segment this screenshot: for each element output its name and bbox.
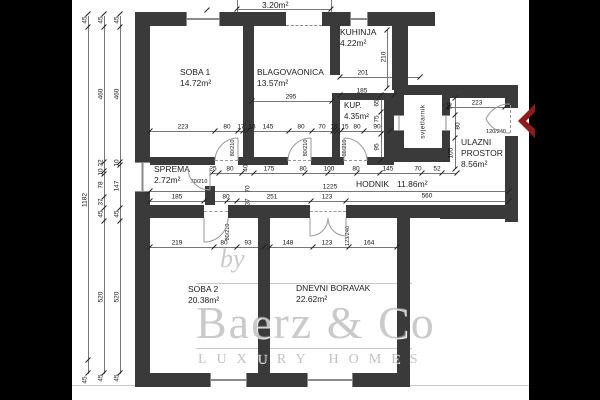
room-area: 4.35m² — [344, 111, 369, 122]
dimension-label: 93 — [244, 240, 251, 247]
dimension-label: 460 — [98, 89, 105, 100]
dimension-label: 45 — [98, 374, 105, 381]
tick-mark — [384, 85, 390, 91]
room-name: DNEVNI BORAVAK — [296, 283, 370, 293]
dimension-label: 70 — [245, 185, 252, 192]
dimension-label: 185 — [357, 88, 368, 95]
room-area-hodnik: 11.86m² — [397, 179, 428, 190]
dimension-line — [150, 131, 390, 132]
dimension-label: 148 — [283, 240, 294, 247]
wall — [205, 186, 215, 205]
dimension-label: 80 — [226, 166, 233, 173]
room-name: HODNIK — [356, 179, 389, 189]
dimension-label: 65 — [374, 99, 381, 106]
wall — [135, 192, 150, 387]
dimension-line — [448, 107, 505, 108]
wall — [258, 218, 270, 373]
dimension-label: 560 — [422, 193, 433, 200]
window — [210, 373, 247, 387]
dimension-label: 45 — [98, 16, 105, 23]
left-letterbox-bar — [0, 0, 72, 400]
room-label-sprema: SPREMA 2.72m² — [154, 164, 190, 186]
dimension-label: 210 — [381, 52, 388, 63]
dimension-label: 100 — [324, 166, 335, 173]
door-threshold — [215, 160, 238, 161]
dimension-label: 70 — [318, 124, 325, 131]
door-size-label: 80/210 — [303, 140, 309, 157]
room-name: KUHINJA — [340, 27, 376, 37]
door-threshold — [204, 211, 228, 212]
balcony-area-label: 3.20m² — [262, 0, 288, 11]
tick-mark — [85, 370, 91, 376]
dimension-label: 175 — [264, 166, 275, 173]
window — [186, 12, 220, 26]
door-size-label: 80/210 — [230, 140, 236, 157]
dimension-label: 78 — [98, 181, 105, 188]
wall — [346, 205, 440, 218]
dimension-label: 80 — [299, 166, 306, 173]
window — [442, 115, 450, 131]
wall — [440, 205, 518, 219]
dimension-label: 1182 — [82, 193, 89, 207]
dimension-line — [381, 95, 382, 160]
room-area: 3.20m² — [262, 0, 288, 10]
dimension-label: 17 — [237, 124, 244, 131]
light-well: svjetlarnik — [404, 95, 442, 148]
room-name: SOBA 1 — [180, 67, 210, 77]
dimension-label: 223 — [178, 124, 189, 131]
right-letterbox-bar — [529, 0, 600, 400]
door-size-label: 70/210 — [191, 179, 208, 185]
tick-mark — [454, 170, 460, 176]
door-threshold — [344, 160, 367, 161]
tick-mark — [417, 74, 423, 80]
dimension-label: 123 — [322, 240, 333, 247]
watermark-by: by — [220, 244, 245, 274]
dimension-label: 80 — [353, 124, 360, 131]
dimension-label: 80 — [220, 240, 227, 247]
dimension-label: 10 — [98, 168, 105, 175]
room-name: ULAZNI PROSTOR — [461, 137, 503, 158]
room-area: 13.57m² — [257, 78, 324, 89]
wall — [247, 373, 307, 387]
dimension-label: 90 — [373, 124, 380, 131]
door-threshold — [288, 160, 311, 161]
dimension-label: 25 — [209, 166, 216, 173]
room-area: 20.38m² — [188, 295, 219, 306]
door-threshold — [510, 105, 511, 133]
window — [350, 12, 368, 26]
dimension-label: 201 — [358, 70, 369, 77]
dimension-label: 37 — [98, 198, 105, 205]
dimension-line — [455, 98, 456, 169]
wall — [135, 12, 150, 162]
room-label-soba1: SOBA 1 14.72m² — [180, 67, 211, 89]
dimension-label: 460 — [114, 89, 121, 100]
room-area: 11.86m² — [397, 179, 428, 189]
wall — [311, 157, 344, 165]
dimension-label: 45 — [114, 210, 121, 217]
dimension-label: 15 — [341, 124, 348, 131]
dimension-label: 45 — [82, 376, 89, 383]
room-area: 14.72m² — [180, 78, 211, 89]
dimension-label: 37 — [245, 198, 252, 205]
dimension-label: 295 — [286, 94, 297, 101]
room-area: 2.72m² — [154, 175, 190, 186]
dimension-label: 520 — [114, 292, 121, 303]
dimension-label: 105 — [448, 148, 455, 159]
dimension-label: 40 — [243, 164, 250, 171]
door-size-label: 80/210 — [225, 224, 231, 241]
dimension-label: 45 — [114, 374, 121, 381]
dimension-label: 164 — [364, 240, 375, 247]
room-name: KUP. — [344, 101, 362, 110]
wall — [228, 205, 310, 218]
wall — [135, 205, 204, 218]
room-label-blagovaonica: BLAGOVAONICA 13.57m² — [257, 67, 324, 89]
dimension-line — [120, 16, 121, 374]
dimension-label: 80 — [352, 166, 359, 173]
watermark-tagline: LUXURY HOMES — [198, 352, 428, 368]
window — [307, 373, 353, 387]
dimension-label: 32 — [98, 159, 105, 166]
wall — [135, 373, 210, 387]
room-name: svjetlarnik — [420, 104, 427, 138]
wall — [397, 218, 410, 373]
dimension-label: 58 — [447, 102, 454, 109]
wall — [135, 12, 186, 26]
wall — [392, 12, 408, 90]
dimension-label: 147 — [114, 181, 121, 192]
dimension-label: 145 — [263, 124, 274, 131]
window — [394, 115, 404, 131]
room-area: 4.22m² — [340, 38, 376, 49]
window — [135, 162, 150, 192]
room-label-kupaonica: KUP. 4.35m² — [344, 100, 369, 122]
dimension-label: 10 — [114, 159, 121, 166]
dimension-line — [150, 191, 509, 192]
wall — [243, 26, 254, 165]
dimension-line — [150, 247, 397, 248]
room-label-ulazni-prostor: ULAZNI PROSTOR 8.56m² — [461, 137, 519, 170]
dimension-label: 1225 — [323, 184, 337, 191]
dimension-label: 75 — [374, 115, 381, 122]
floor-plan-screenshot: 4511824545460321078374552045454601014745… — [0, 0, 600, 400]
room-label-kuhinja: KUHINJA 4.22m² — [340, 27, 376, 49]
dimension-label: 185 — [172, 194, 183, 201]
room-label-soba2: SOBA 2 20.38m² — [188, 284, 219, 306]
dimension-label: 45 — [82, 16, 89, 23]
wall — [353, 373, 410, 387]
room-area: 8.56m² — [461, 159, 519, 170]
dimension-label: 223 — [472, 100, 483, 107]
door-threshold — [310, 211, 346, 212]
dimension-label: 520 — [98, 292, 105, 303]
door-size-label: 120/240 — [486, 129, 506, 135]
dimension-line — [340, 77, 420, 78]
room-label-hodnik: HODNIK — [356, 179, 389, 190]
wall — [330, 12, 340, 75]
balcony-opening — [286, 12, 322, 26]
dimension-label: 80 — [223, 124, 230, 131]
dimension-label: 80 — [222, 194, 229, 201]
room-name: SOBA 2 — [188, 284, 218, 294]
dimension-label: 145 — [383, 166, 394, 173]
dimension-label: 80 — [297, 124, 304, 131]
dimension-label: 80 — [455, 122, 462, 129]
room-label-dnevni-boravak: DNEVNI BORAVAK 22.62m² — [296, 283, 370, 305]
dimension-label: 219 — [172, 240, 183, 247]
door-size-label: 123/240 — [345, 226, 351, 246]
dimension-label: 70 — [414, 166, 421, 173]
wall — [384, 93, 394, 162]
room-name: BLAGOVAONICA — [257, 67, 324, 77]
dimension-label: 52 — [433, 166, 440, 173]
door-size-label: 80/210 — [342, 140, 348, 157]
dimension-label: 123 — [322, 194, 333, 201]
room-area: 22.62m² — [296, 294, 370, 305]
watermark-rule — [196, 348, 412, 349]
wall — [220, 12, 286, 26]
dimension-label: 251 — [267, 194, 278, 201]
dimension-label: 13 — [248, 124, 255, 131]
room-name: SPREMA — [154, 164, 190, 174]
dimension-label: 15 — [330, 124, 337, 131]
dimension-label: 45 — [98, 210, 105, 217]
entry-direction-arrow — [514, 102, 538, 142]
dimension-label: 45 — [114, 16, 121, 23]
dimension-line — [252, 101, 332, 102]
dimension-label: 95 — [374, 143, 381, 150]
